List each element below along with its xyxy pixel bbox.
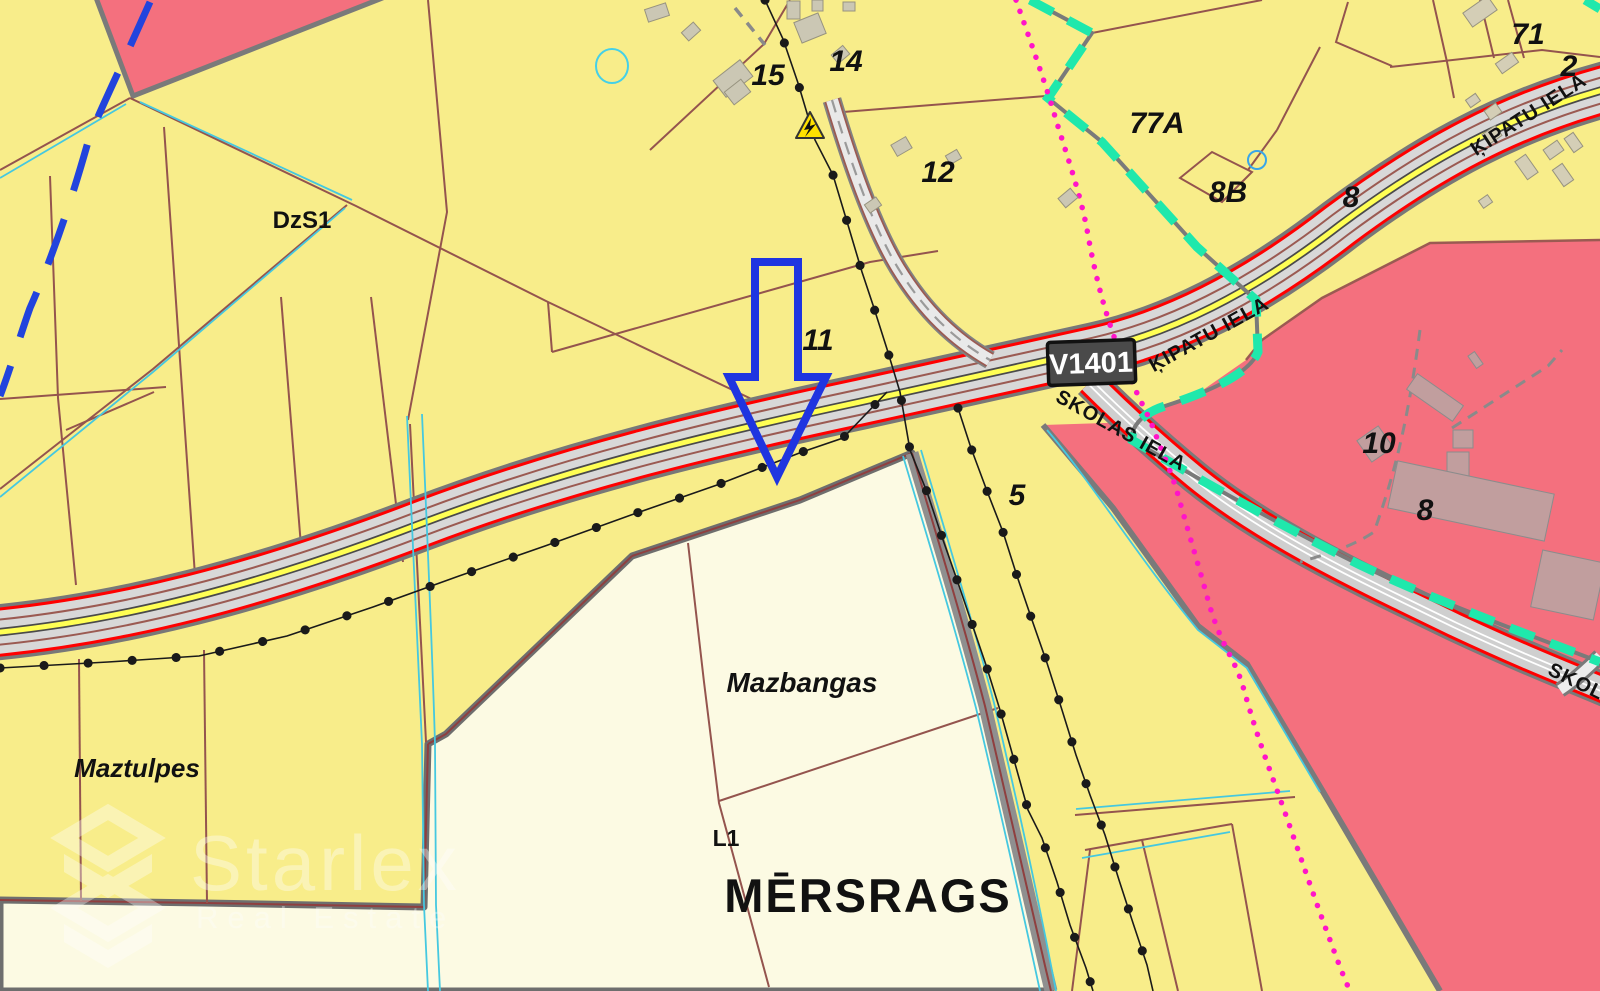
map-canvas[interactable]: V1401 SKOLAS IELA ĶIPATU IELA ĶIPATU IEL…: [0, 0, 1600, 991]
parcel-label-8b: 8B: [1209, 176, 1247, 209]
farm-label-mazbangas: Mazbangas: [727, 667, 878, 698]
watermark-brand: Starlex: [190, 819, 461, 907]
zoning-code-label: DzS1: [273, 207, 332, 234]
parcel-label-2: 2: [1560, 50, 1578, 83]
parcel-code-l1-label: L1: [713, 825, 740, 851]
parcel-label-11: 11: [802, 324, 833, 357]
parcel-label-12: 12: [921, 156, 955, 189]
watermark-tagline: Real Estate: [196, 900, 455, 935]
parcel-label-15: 15: [751, 59, 786, 92]
parcel-label-77a: 77A: [1129, 107, 1184, 140]
road-ref-label: V1401: [1049, 347, 1134, 382]
parcel-label-10: 10: [1362, 427, 1396, 460]
village-name-label: MĒRSRAGS: [724, 869, 1012, 922]
parcel-label-14: 14: [829, 45, 863, 78]
parcel-label-71: 71: [1511, 18, 1544, 51]
parcel-label-5: 5: [1009, 479, 1027, 512]
road-ref-badge: V1401: [1047, 339, 1135, 385]
farm-label-maztulpes: Maztulpes: [74, 753, 200, 783]
parcel-label-8-school: 8: [1417, 494, 1434, 527]
parcel-label-8: 8: [1343, 181, 1360, 214]
